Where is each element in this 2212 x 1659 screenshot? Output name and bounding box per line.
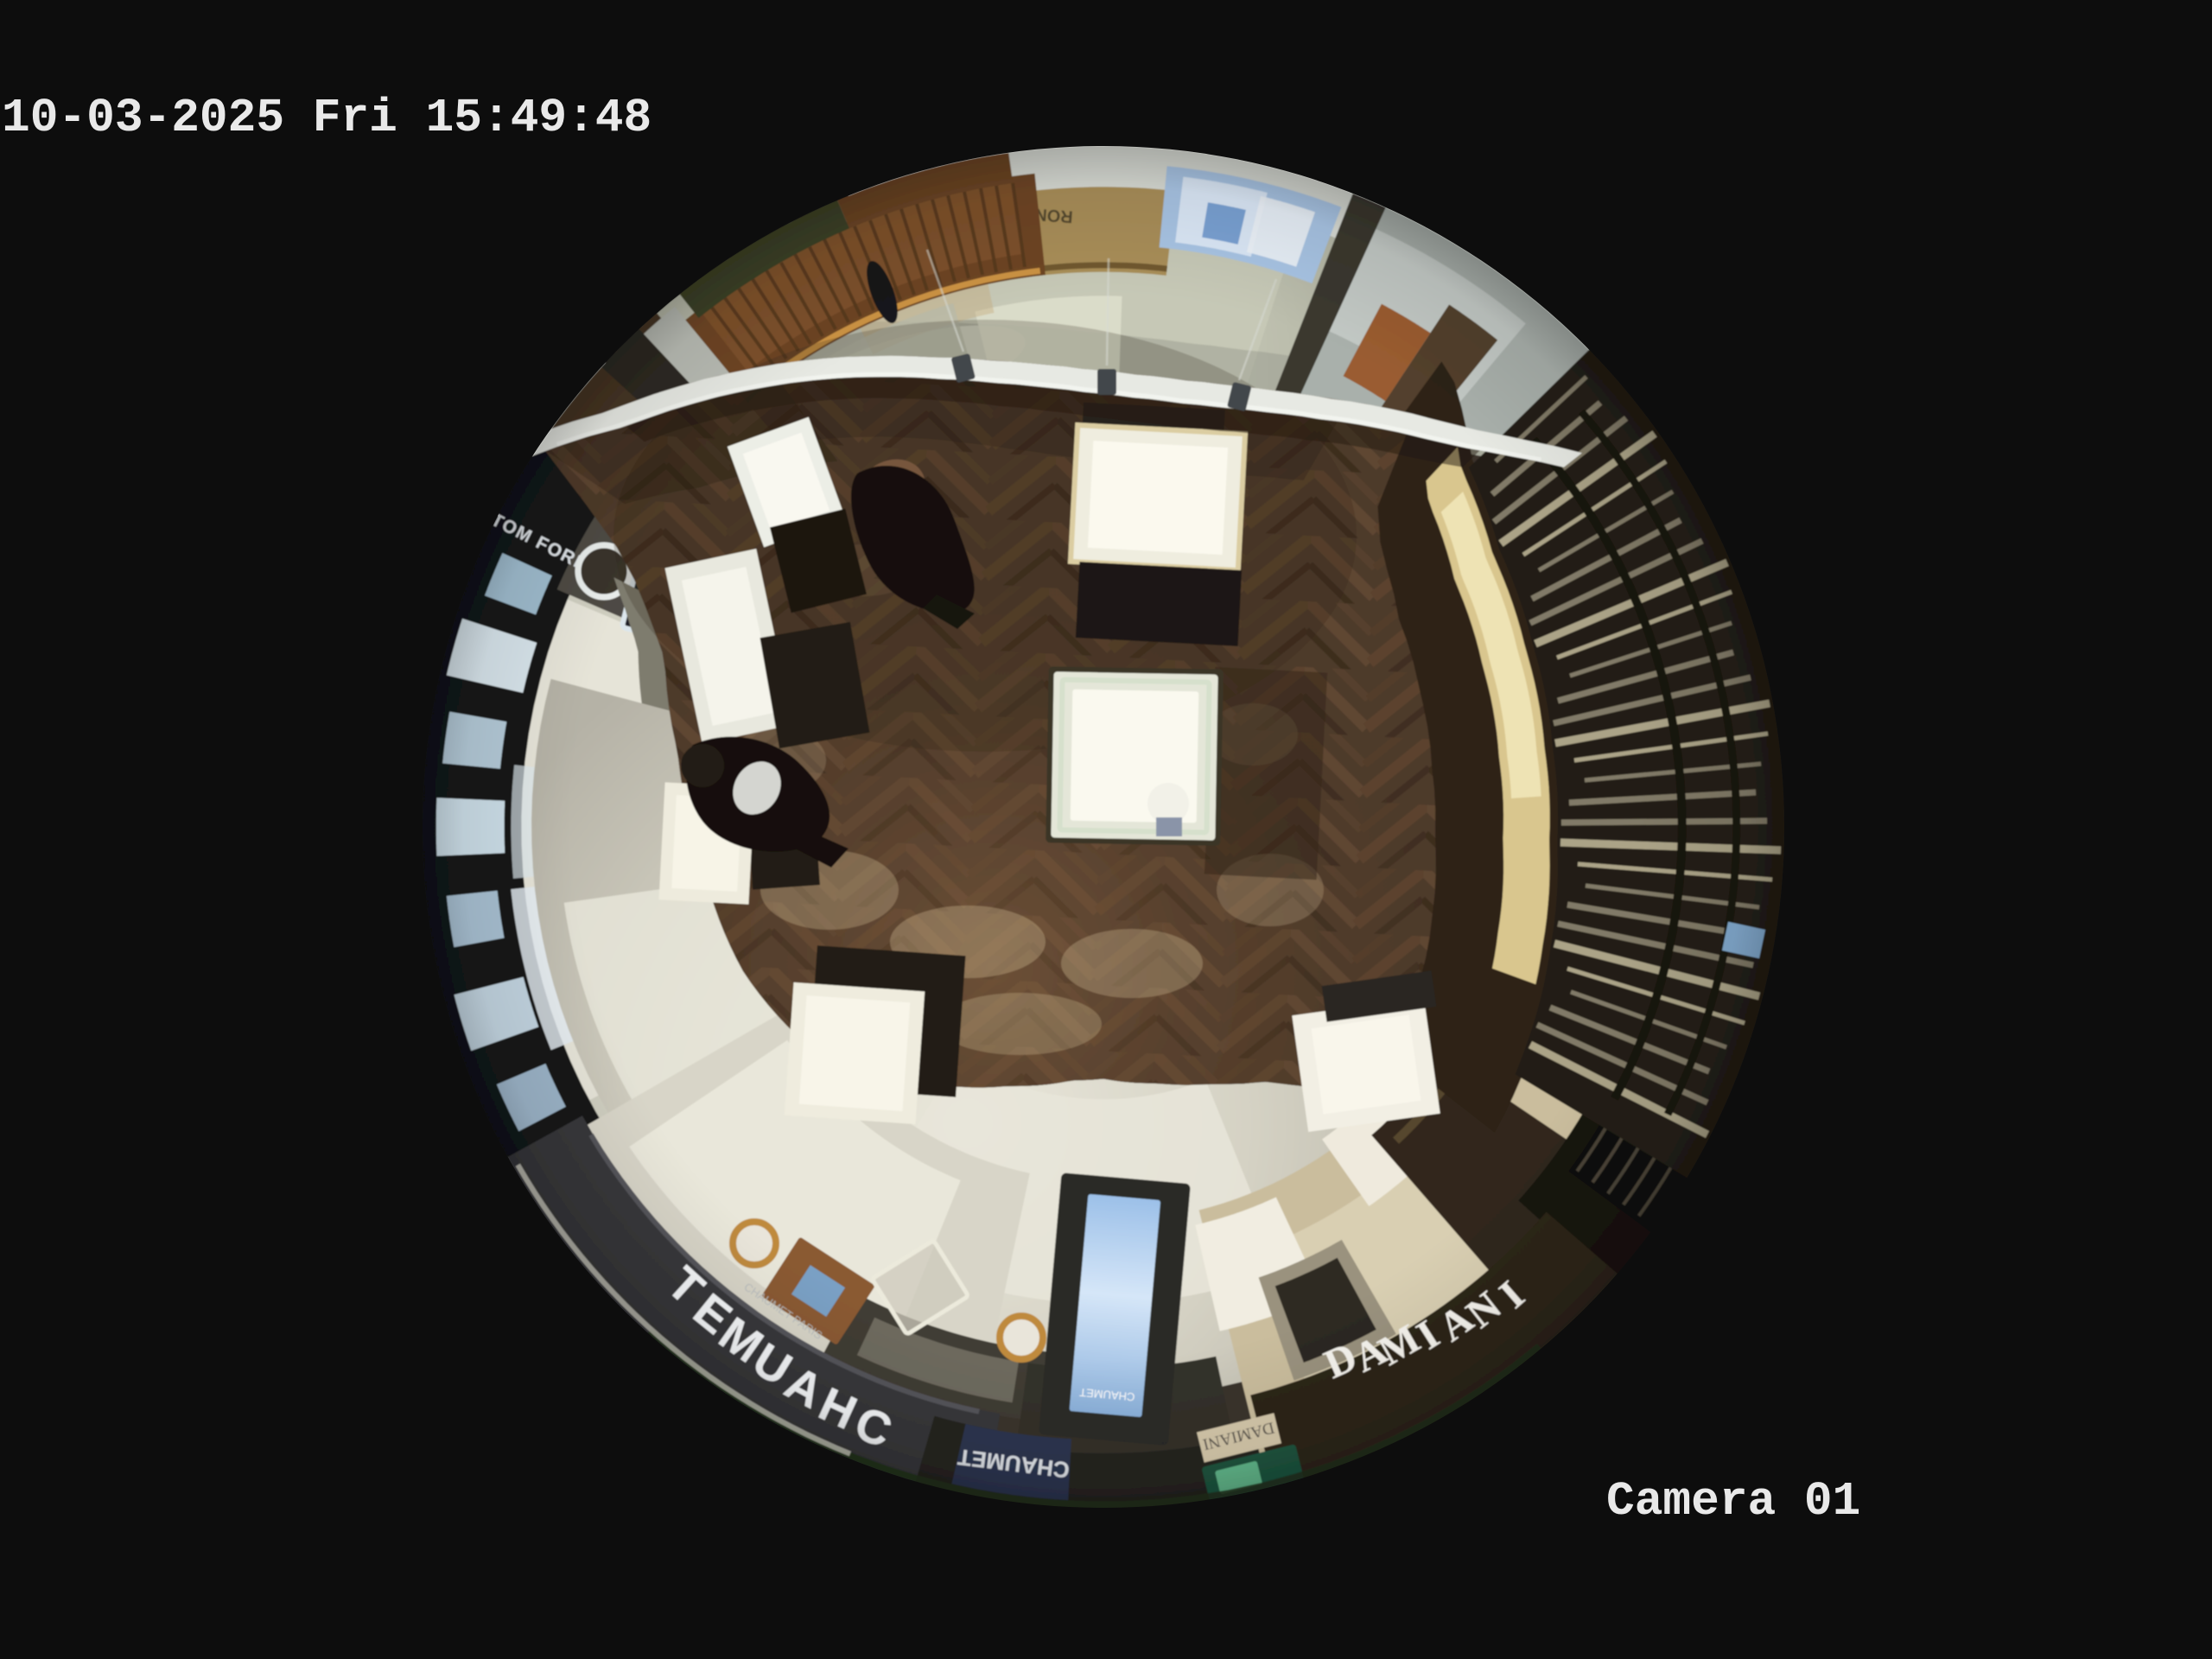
svg-text:10-03-2025 Fri 15:49:48: 10-03-2025 Fri 15:49:48 bbox=[2, 92, 652, 145]
svg-text:Camera 01: Camera 01 bbox=[1606, 1476, 1860, 1529]
